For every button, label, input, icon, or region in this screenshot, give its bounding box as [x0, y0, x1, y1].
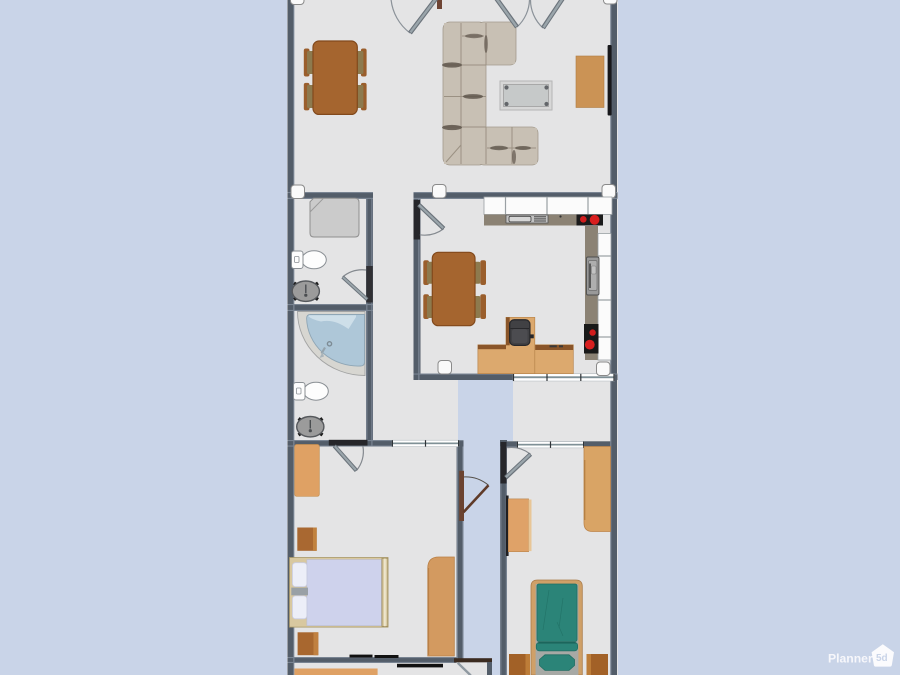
- svg-text:Planner: Planner: [828, 652, 873, 666]
- svg-text:5d: 5d: [876, 653, 888, 664]
